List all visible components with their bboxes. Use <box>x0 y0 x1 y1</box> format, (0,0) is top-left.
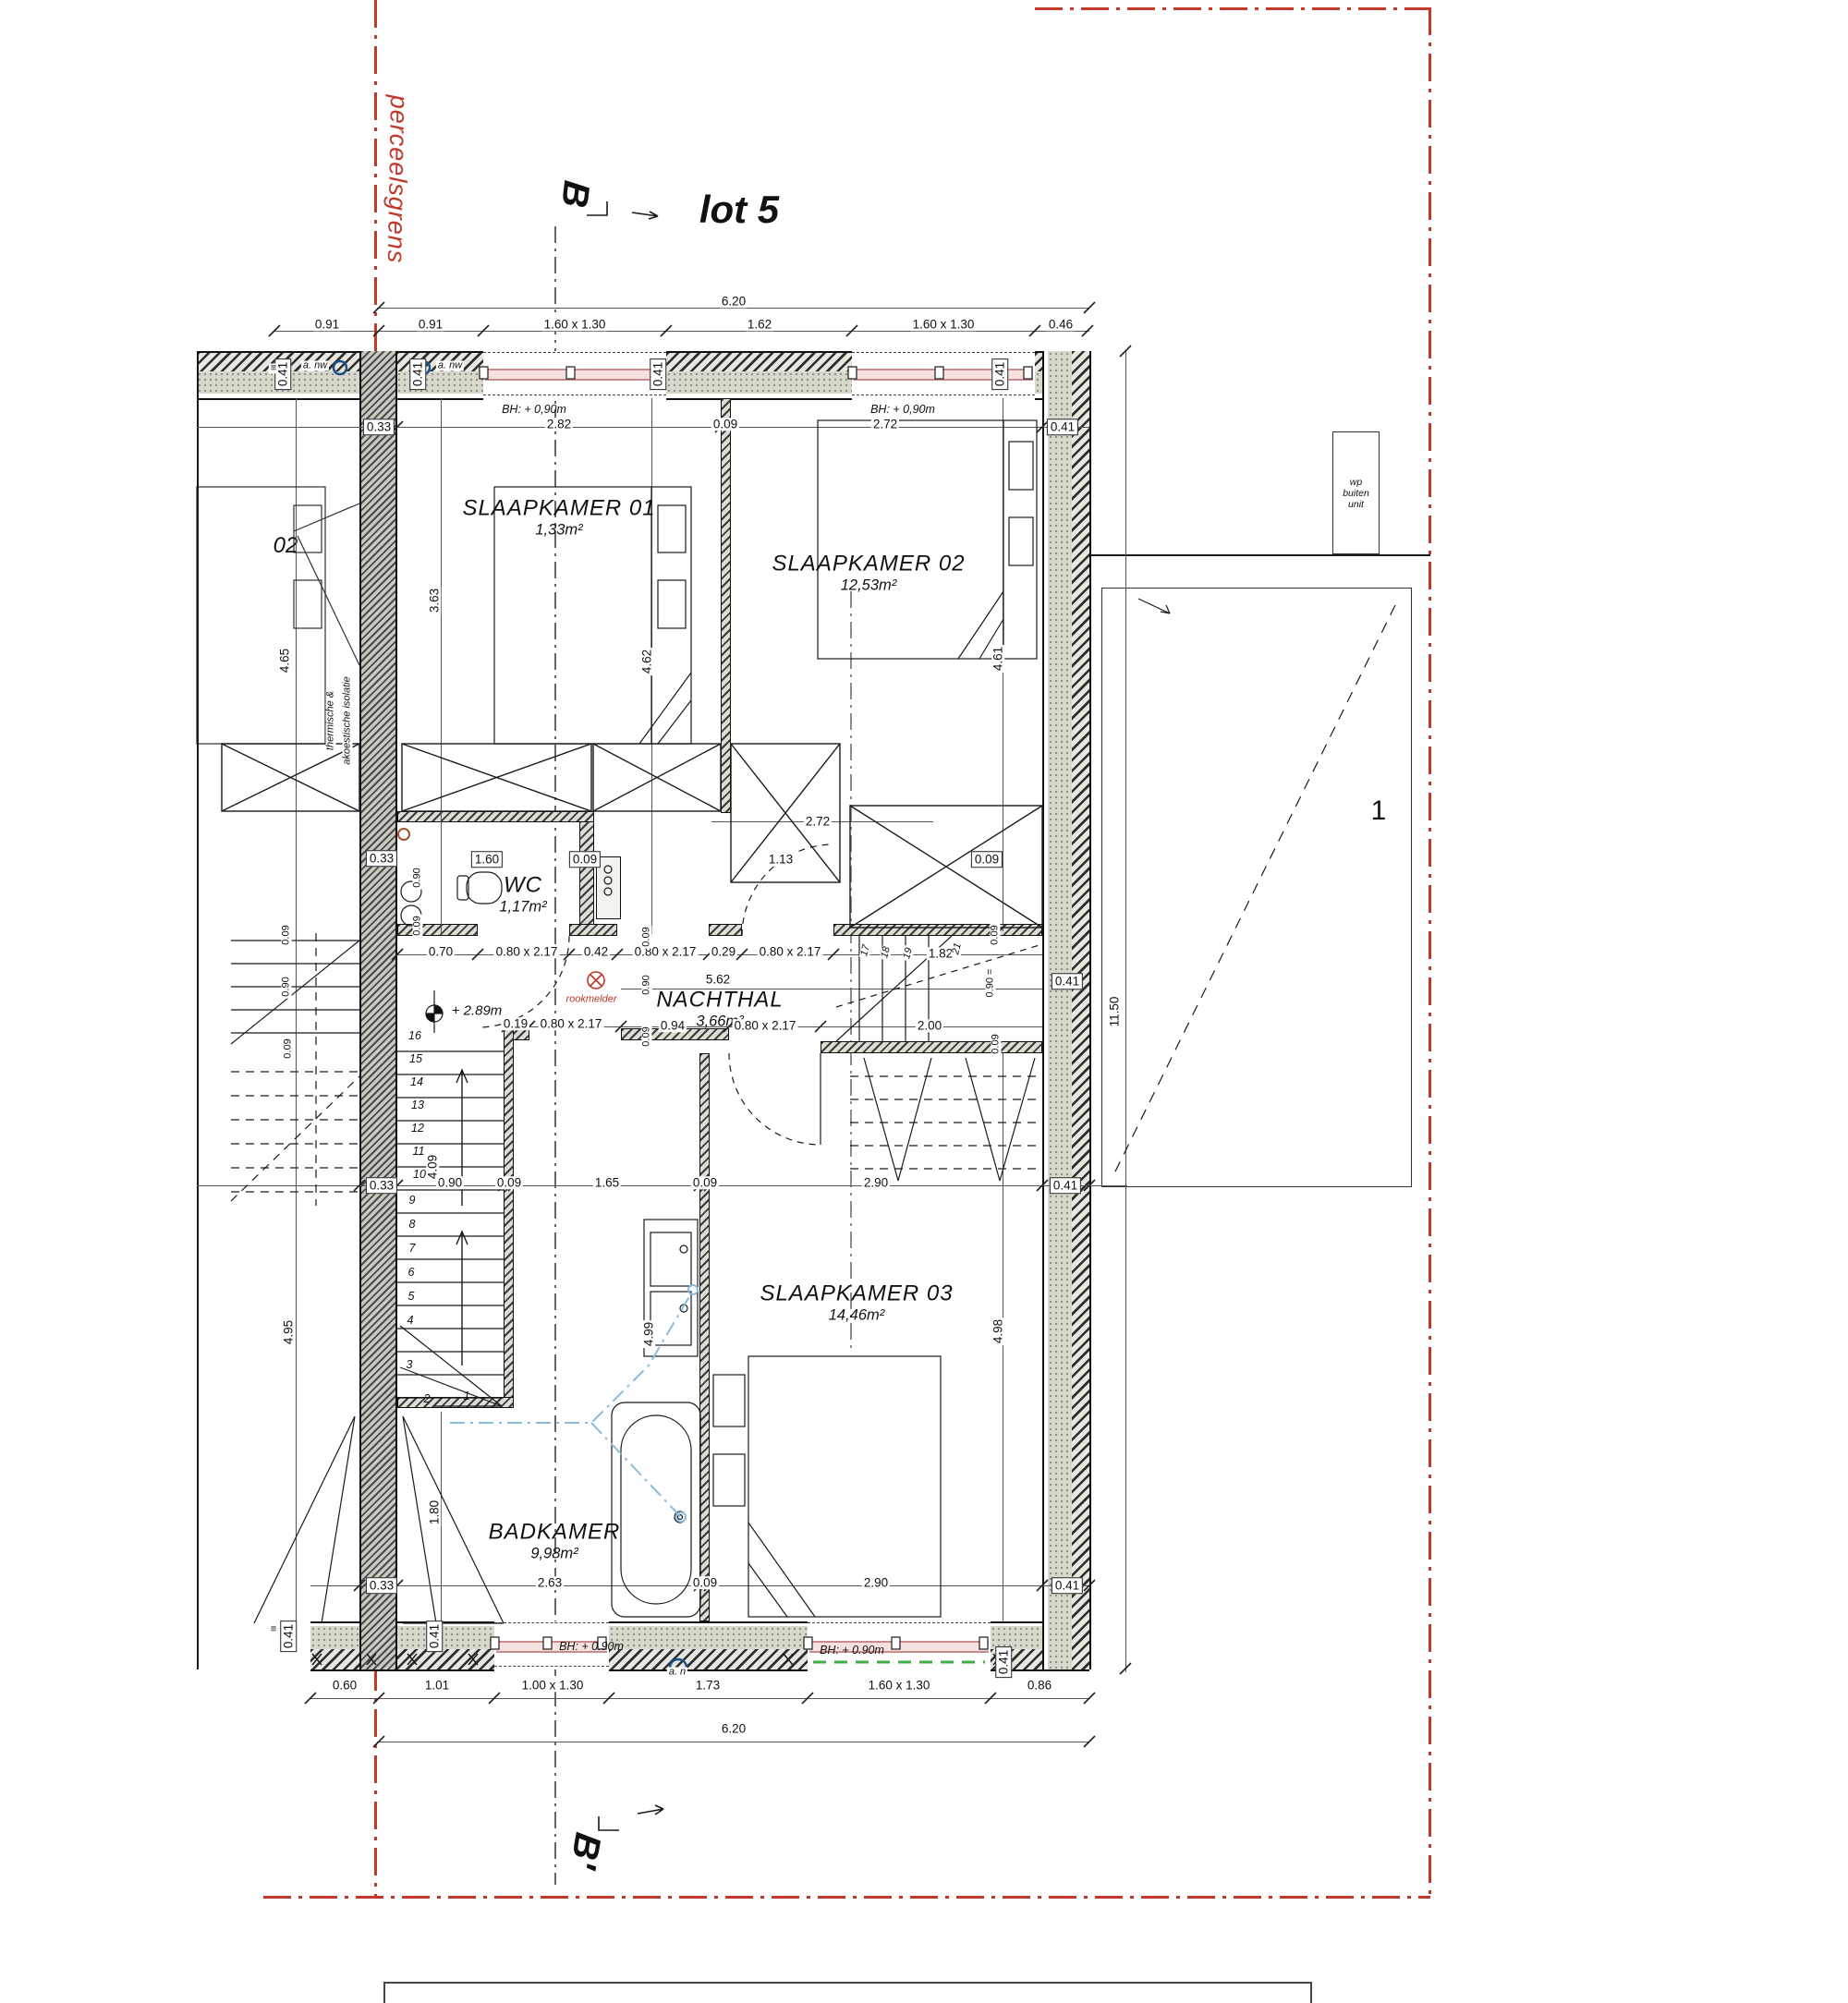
dim-label: 15 <box>407 1053 424 1065</box>
dim-label: 4.62 <box>640 648 653 675</box>
dim-label: 4.95 <box>282 1318 295 1346</box>
dim-label: 0.90 <box>413 866 423 889</box>
dim-label: 6 <box>407 1267 417 1279</box>
dim-label: BH: + 0.90m <box>557 1641 626 1653</box>
dim-label: 5.62 <box>704 973 732 986</box>
dim-label: 0.90 <box>642 973 652 996</box>
dim-label: 0.80 x 2.17 <box>758 945 823 958</box>
dim-label: 1.60 <box>471 851 503 868</box>
dim-label: + 2.89m <box>450 1004 505 1018</box>
section-arrow-top <box>587 201 658 219</box>
dim-label: a. nw <box>436 361 464 371</box>
dim-label: 0.91 <box>313 318 341 331</box>
dim-label: 4.99 <box>642 1320 655 1348</box>
dim-label: 8 <box>407 1219 418 1231</box>
dim-label: 1.60 x 1.30 <box>911 318 977 331</box>
dim-label: 0.41 <box>1052 973 1083 989</box>
dim-label: 0.80 x 2.17 <box>733 1019 798 1032</box>
dim-label: 0.70 <box>427 945 455 958</box>
room-area: 9,98m² <box>489 1546 621 1563</box>
room-area: 1,33m² <box>462 522 655 540</box>
room-name: BADKAMER <box>489 1520 621 1546</box>
dim-label: 0.09 <box>691 1176 719 1189</box>
dim-label: 4 <box>406 1315 416 1327</box>
room-name: NACHTHAL <box>656 988 783 1014</box>
room-area: 1,17m² <box>499 899 546 917</box>
dim-label: 0.41 <box>1052 1577 1083 1594</box>
dim-label: 0.41 <box>650 358 666 390</box>
dim-label: 0.86 <box>1026 1679 1053 1692</box>
dim-label: 0.19 <box>502 1017 529 1030</box>
dim-label: 14 <box>408 1076 425 1088</box>
dim-label: 0.90 <box>436 1176 464 1189</box>
dim-label: 0.41 <box>409 358 426 390</box>
dim-label: 0.41 <box>995 1646 1012 1678</box>
closet-boxes <box>222 744 1042 928</box>
room-label-slaapkamer-03: SLAAPKAMER 0314,46m² <box>760 1281 953 1325</box>
dim-label: 3.63 <box>428 587 441 614</box>
room-name: WC <box>499 873 546 899</box>
dim-label: 0.29 <box>710 945 737 958</box>
dim-label: 0.41 <box>426 1621 443 1652</box>
dim-label: 2.82 <box>545 418 573 431</box>
room-area: 14,46m² <box>760 1307 953 1325</box>
room-name: SLAAPKAMER 03 <box>760 1281 953 1307</box>
room-name: SLAAPKAMER 02 <box>772 552 965 577</box>
dim-label: ≡ <box>269 1625 278 1635</box>
bed-sk03 <box>713 1356 941 1617</box>
dim-label: 5 <box>407 1291 417 1303</box>
dim-label: 2.63 <box>536 1576 564 1589</box>
dim-label: 0.90 = <box>986 967 996 1000</box>
dim-label: 12 <box>409 1123 426 1135</box>
dim-label: BH: + 0,90m <box>869 404 937 416</box>
dim-label: 0.09 <box>971 851 1003 868</box>
plumbing-lines <box>450 1285 698 1522</box>
dim-label: 0.09 <box>569 851 601 868</box>
dim-label: akoestische isolatie <box>343 674 353 766</box>
section-arrow-bottom <box>599 1805 663 1830</box>
dim-label: 0.41 <box>1047 419 1078 435</box>
dim-label: 1 <box>462 1390 472 1402</box>
dim-label: 1.00 x 1.30 <box>520 1679 586 1692</box>
room-label-slaapkamer-01: SLAAPKAMER 011,33m² <box>462 496 655 540</box>
dim-label: 2.72 <box>871 418 899 431</box>
dim-label: a. n <box>667 1668 687 1678</box>
dim-label: thermische & <box>326 689 336 752</box>
dim-label: 0.09 <box>284 1037 294 1060</box>
room-area: 12,53m² <box>772 577 965 595</box>
dim-label: 0.33 <box>366 1577 397 1594</box>
dim-label: 7 <box>407 1243 418 1255</box>
dim-label: ≡ <box>269 364 278 374</box>
dim-label: 4.61 <box>991 645 1004 673</box>
dim-label: 2.90 <box>862 1576 890 1589</box>
smoke-detector-icon <box>588 972 604 989</box>
dim-label: 11 <box>411 1146 427 1158</box>
dim-label: 1.13 <box>767 853 795 866</box>
dim-label: 0.41 <box>991 358 1008 390</box>
dim-label: 0.09 <box>282 923 292 946</box>
dim-label: 0.91 <box>417 318 444 331</box>
annex-arrow <box>1138 599 1170 613</box>
dim-label: BH: + 0,90m <box>500 404 568 416</box>
dim-label: 0.09 <box>711 418 739 431</box>
dim-label: 0.09 <box>691 1576 719 1589</box>
dim-label: 0.90 <box>282 975 292 998</box>
dim-label: BH: + 0.90m <box>818 1645 886 1657</box>
dim-label: 2.72 <box>804 815 832 828</box>
level-marker-icon <box>426 990 443 1033</box>
toilet <box>457 872 502 904</box>
dim-label: 1.80 <box>428 1499 441 1526</box>
dim-label: 1.60 x 1.30 <box>542 318 608 331</box>
dim-label: 1.62 <box>746 318 773 331</box>
dim-label: 0.60 <box>331 1679 359 1692</box>
dim-label: 0.09 <box>991 1032 1002 1055</box>
dim-label: 1.73 <box>694 1679 722 1692</box>
bed-sk02 <box>818 420 1037 659</box>
dim-label: 16 <box>407 1030 423 1042</box>
dim-label: 0.33 <box>366 850 397 867</box>
dim-label: 9 <box>407 1195 418 1207</box>
dim-label: 1.65 <box>593 1176 621 1189</box>
room-label-slaapkamer-02: SLAAPKAMER 0212,53m² <box>772 552 965 595</box>
dim-label: 2.90 <box>862 1176 890 1189</box>
dim-label: 0.80 x 2.17 <box>494 945 560 958</box>
dim-label: 0.33 <box>363 419 395 435</box>
dim-label: 6.20 <box>720 295 748 308</box>
dim-label: 0.09 <box>642 1025 652 1048</box>
dim-label: 0.80 x 2.17 <box>539 1017 604 1030</box>
room-label-badkamer: BADKAMER9,98m² <box>489 1520 621 1563</box>
dim-label: 1.60 x 1.30 <box>867 1679 932 1692</box>
dim-label: 0.09 <box>495 1176 523 1189</box>
dim-label: 0.41 <box>280 1621 297 1652</box>
dim-label: 13 <box>409 1099 426 1111</box>
dim-label: 4.09 <box>426 1153 439 1181</box>
dim-label: a. nw <box>301 361 329 371</box>
annex-diagonal <box>1113 605 1395 1175</box>
room-name: SLAAPKAMER 01 <box>462 496 655 522</box>
dim-label: 0.46 <box>1047 318 1075 331</box>
titleblock-edge <box>383 1982 1312 2003</box>
bathtub <box>612 1402 700 1617</box>
room-label-wc: WC1,17m² <box>499 873 546 917</box>
dim-label: 0.94 <box>659 1019 687 1032</box>
dim-label: 0.09 <box>991 923 1001 946</box>
dim-label: 4.98 <box>991 1317 1004 1345</box>
dim-label: 0.41 <box>1050 1177 1081 1194</box>
dim-label: 1.01 <box>423 1679 451 1692</box>
dim-label: 3 <box>405 1359 415 1371</box>
dim-label: 4.65 <box>278 647 291 674</box>
neighbor-door-lines <box>254 1416 355 1623</box>
dim-label: 2 <box>422 1393 432 1405</box>
plan-linework <box>0 0 1848 2003</box>
vide-dashed <box>850 1058 1042 1181</box>
dim-label: 0.09 <box>413 914 423 937</box>
dim-label: 0.42 <box>582 945 610 958</box>
floor-plan-sheet: perceelsgrens lot 5 B B' 02 1 <box>0 0 1848 2003</box>
dim-label: 2.00 <box>916 1019 943 1032</box>
dim-label: rookmelder <box>564 995 618 1005</box>
stair-neighbor <box>231 933 359 1206</box>
dim-label: 6.20 <box>720 1722 748 1735</box>
dim-label: 0.09 <box>642 925 652 948</box>
dim-label: 11.50 <box>1108 995 1121 1029</box>
dim-label: 0.33 <box>366 1177 397 1194</box>
